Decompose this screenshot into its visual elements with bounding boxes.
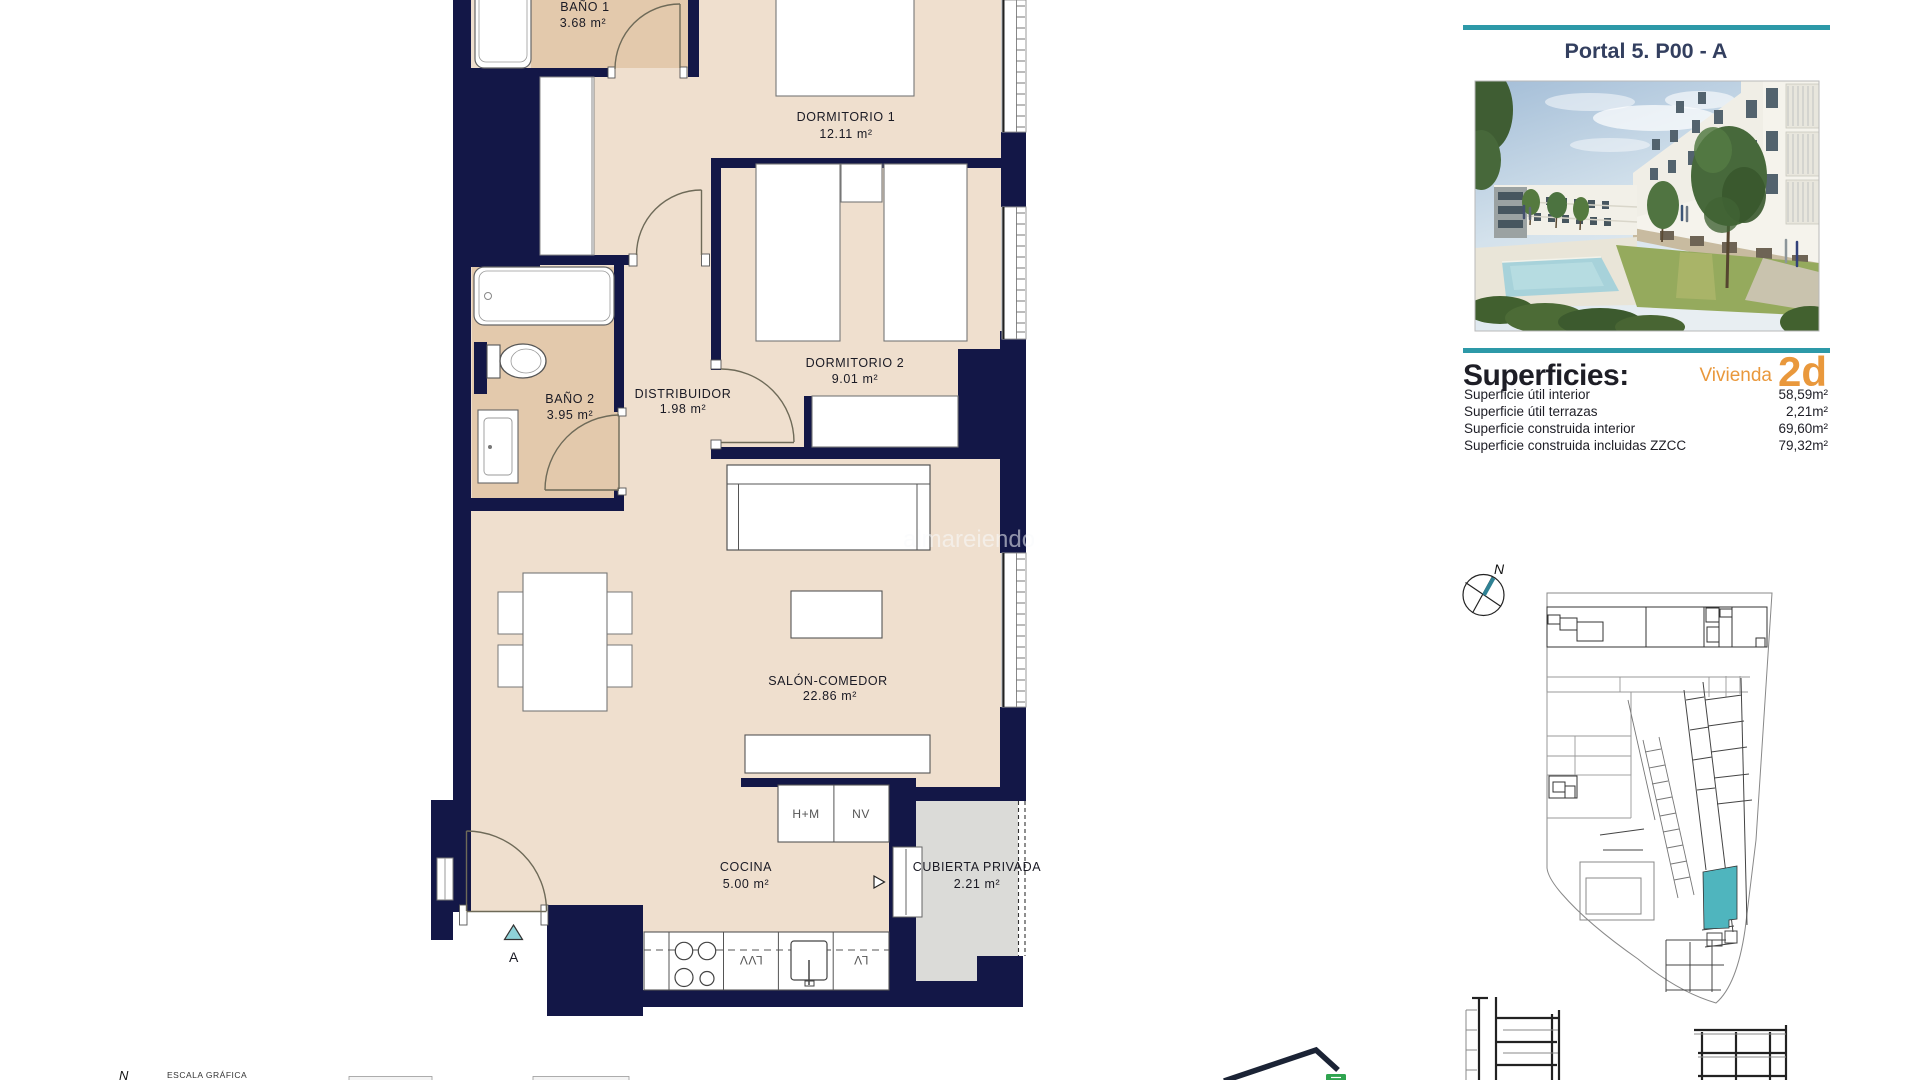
svg-text:Superficie útil interior: Superficie útil interior [1464, 387, 1591, 402]
svg-text:SALÓN-COMEDOR: SALÓN-COMEDOR [768, 673, 888, 688]
svg-text:BAÑO 1: BAÑO 1 [560, 0, 609, 14]
svg-text:5.00 m²: 5.00 m² [723, 877, 770, 891]
svg-text:2.21 m²: 2.21 m² [954, 877, 1001, 891]
svg-text:A: A [509, 949, 519, 965]
svg-text:1.98 m²: 1.98 m² [660, 402, 707, 416]
svg-text:DORMITORIO 1: DORMITORIO 1 [797, 110, 896, 124]
svg-text:Superficie construida interior: Superficie construida interior [1464, 421, 1636, 436]
svg-text:DISTRIBUIDOR: DISTRIBUIDOR [635, 387, 732, 401]
svg-text:69,60m²: 69,60m² [1778, 421, 1828, 436]
svg-text:LVV: LVV [739, 953, 762, 967]
svg-text:Superficie construida incluida: Superficie construida incluidas ZZCC [1464, 438, 1686, 453]
svg-text:Portal 5. P00 - A: Portal 5. P00 - A [1565, 39, 1728, 63]
svg-text:12.11 m²: 12.11 m² [819, 127, 872, 141]
svg-text:N: N [119, 1068, 129, 1080]
svg-text:3.95 m²: 3.95 m² [547, 408, 594, 422]
svg-text:DORMITORIO 2: DORMITORIO 2 [806, 356, 905, 370]
svg-text:Vivienda: Vivienda [1699, 365, 1772, 386]
svg-text:22.86 m²: 22.86 m² [803, 689, 857, 703]
svg-text:79,32m²: 79,32m² [1778, 438, 1828, 453]
svg-text:N: N [1494, 561, 1505, 577]
svg-text:COCINA: COCINA [720, 860, 772, 874]
svg-text:CUBIERTA PRIVADA: CUBIERTA PRIVADA [913, 860, 1041, 874]
svg-text:BAÑO 2: BAÑO 2 [545, 392, 594, 406]
svg-text:LV: LV [854, 953, 869, 967]
svg-text:9.01 m²: 9.01 m² [832, 372, 879, 386]
svg-text:almareiendo: almareiendo [903, 526, 1035, 553]
svg-text:Superficie útil terrazas: Superficie útil terrazas [1464, 404, 1598, 419]
svg-text:3.68 m²: 3.68 m² [560, 16, 607, 30]
svg-text:2,21m²: 2,21m² [1786, 404, 1829, 419]
svg-text:ESCALA GRÁFICA: ESCALA GRÁFICA [167, 1070, 247, 1080]
svg-text:NV: NV [852, 807, 870, 821]
svg-text:58,59m²: 58,59m² [1778, 387, 1828, 402]
svg-text:H+M: H+M [792, 807, 819, 821]
